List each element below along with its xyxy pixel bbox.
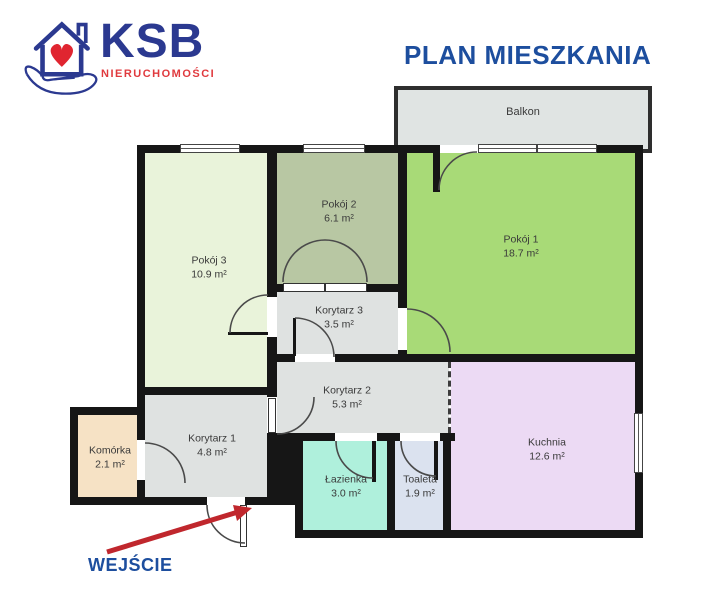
room-label: Pokój 26.1 m²	[321, 198, 356, 225]
door-leaf-pokoj-2-left	[283, 283, 325, 292]
house-heart-in-hand-icon	[14, 8, 106, 100]
balcony-label: Balkon	[506, 105, 540, 119]
door-leaf-lazienka	[372, 441, 376, 482]
page-title: PLAN MIESZKANIA	[404, 40, 651, 71]
room-label: Korytarz 14.8 m²	[188, 432, 236, 459]
door-leaf-korytarz-1	[268, 398, 276, 433]
room-label: Komórka2.1 m²	[89, 444, 131, 471]
window-pokoj-2	[303, 144, 365, 153]
door-leaf-pokoj-3	[228, 332, 268, 335]
room-label: Pokój 118.7 m²	[503, 233, 539, 260]
door-leaf-entrance	[240, 505, 247, 547]
room-label: Łazienka3.0 m²	[325, 473, 367, 500]
room-label: Korytarz 25.3 m²	[323, 384, 371, 411]
room-label: Kuchnia12.6 m²	[528, 436, 566, 463]
entrance-label: WEJŚCIE	[88, 555, 173, 576]
window-pokoj-1-left	[478, 144, 537, 153]
brand-name: KSB	[100, 18, 204, 66]
open-boundary-kuchnia	[448, 362, 451, 433]
room-label: Korytarz 33.5 m²	[315, 304, 363, 331]
room-label: Pokój 310.9 m²	[191, 254, 227, 281]
floor-plan-page: KSB NIERUCHOMOŚCI PLAN MIESZKANIA Balkon	[0, 0, 716, 600]
window-pokoj-1-right	[537, 144, 597, 153]
room-label: Toaleta1.9 m²	[403, 473, 437, 500]
door-leaf-pokoj-2-right	[325, 283, 367, 292]
balcony	[394, 86, 652, 153]
door-leaf-korytarz-3	[293, 318, 296, 356]
window-pokoj-3	[180, 144, 240, 153]
window-kuchnia	[634, 413, 643, 473]
entrance-arrow	[107, 505, 252, 552]
brand-subtitle: NIERUCHOMOŚCI	[101, 68, 215, 80]
